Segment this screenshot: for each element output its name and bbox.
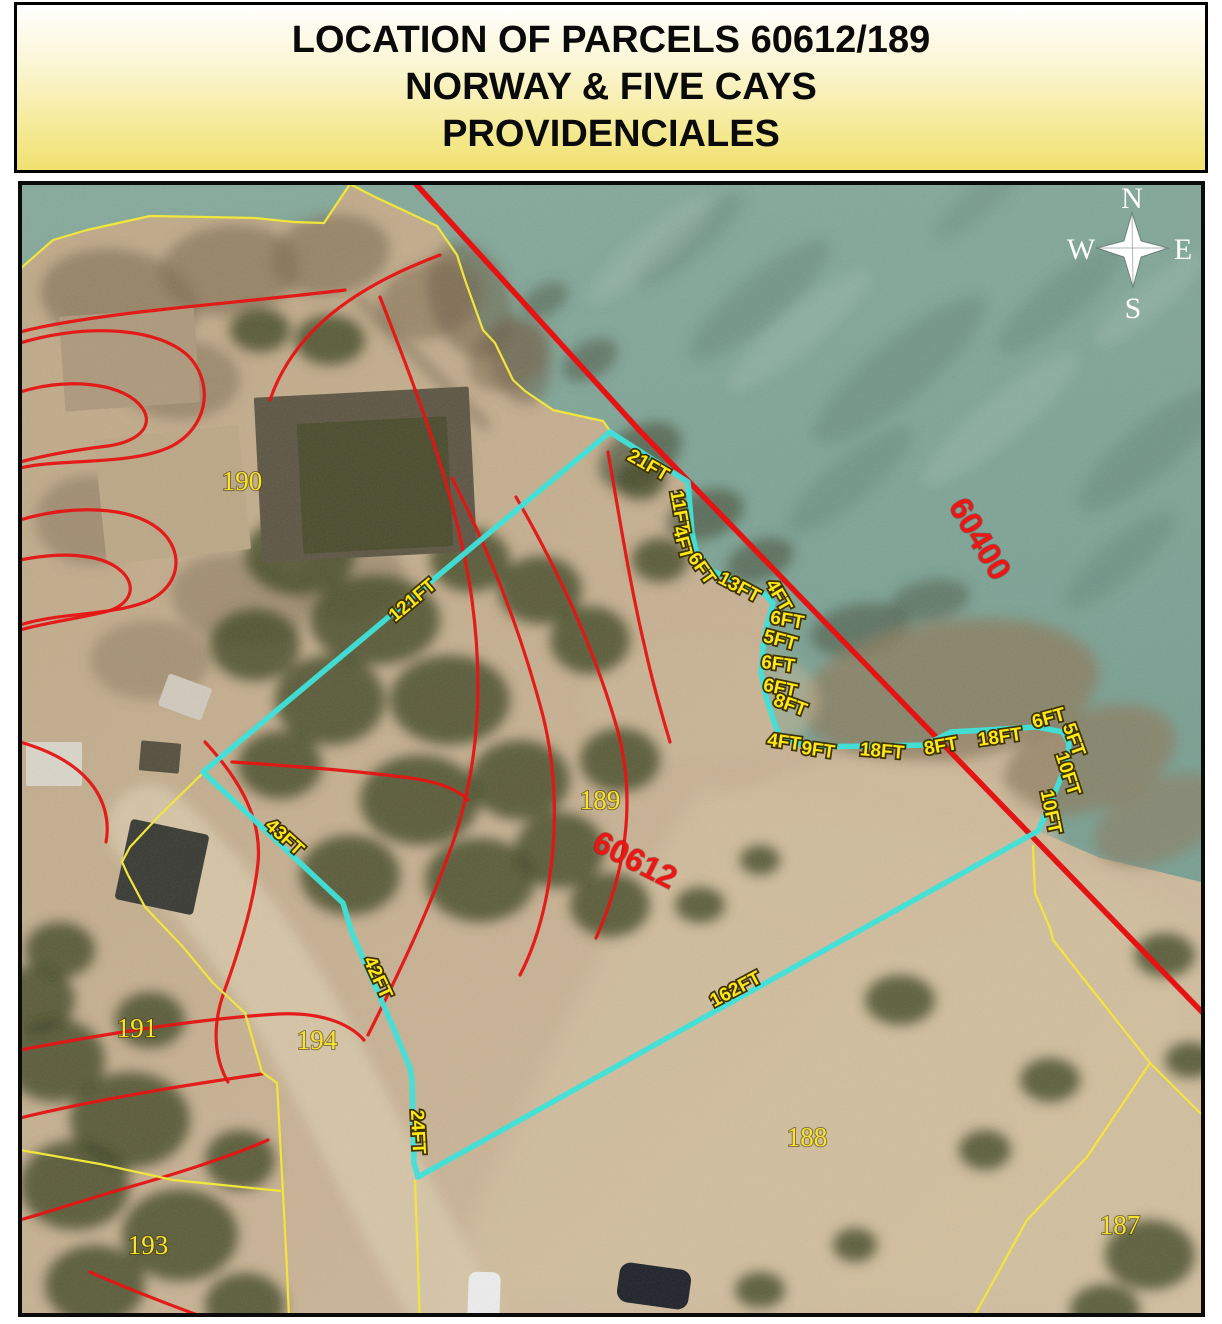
parcel-number-label: 190	[222, 466, 263, 496]
aerial-map: 121FT21FT11FT4FT6FT13FT4FT6FT5FT6FT6FT8F…	[22, 185, 1201, 1313]
parcel-number-label: 187	[1100, 1210, 1141, 1240]
parcel-number-label: 191	[117, 1013, 158, 1043]
parcel-number-label: 194	[297, 1025, 338, 1055]
aerial-map-panel: 121FT21FT11FT4FT6FT13FT4FT6FT5FT6FT6FT8F…	[18, 181, 1205, 1317]
title-panel: LOCATION OF PARCELS 60612/189 NORWAY & F…	[14, 2, 1208, 173]
compass-west-label: W	[1067, 233, 1096, 266]
parcel-number-label: 189	[580, 785, 621, 815]
survey-location-plan: { "title": { "line1": "LOCATION OF PARCE…	[0, 0, 1222, 1324]
parcel-number-label: 188	[787, 1122, 828, 1152]
photo-grain	[22, 185, 1201, 1313]
compass-east-label: E	[1174, 233, 1192, 266]
measurement-label: 24FT	[406, 1109, 429, 1155]
title-line-3: PROVIDENCIALES	[17, 111, 1205, 158]
compass-south-label: S	[1125, 292, 1142, 325]
title-line-2: NORWAY & FIVE CAYS	[17, 64, 1205, 111]
title-line-1: LOCATION OF PARCELS 60612/189	[17, 17, 1205, 64]
parcel-number-label: 193	[128, 1230, 169, 1260]
measurement-label: 18FT	[859, 739, 905, 764]
compass-north-label: N	[1121, 185, 1143, 215]
